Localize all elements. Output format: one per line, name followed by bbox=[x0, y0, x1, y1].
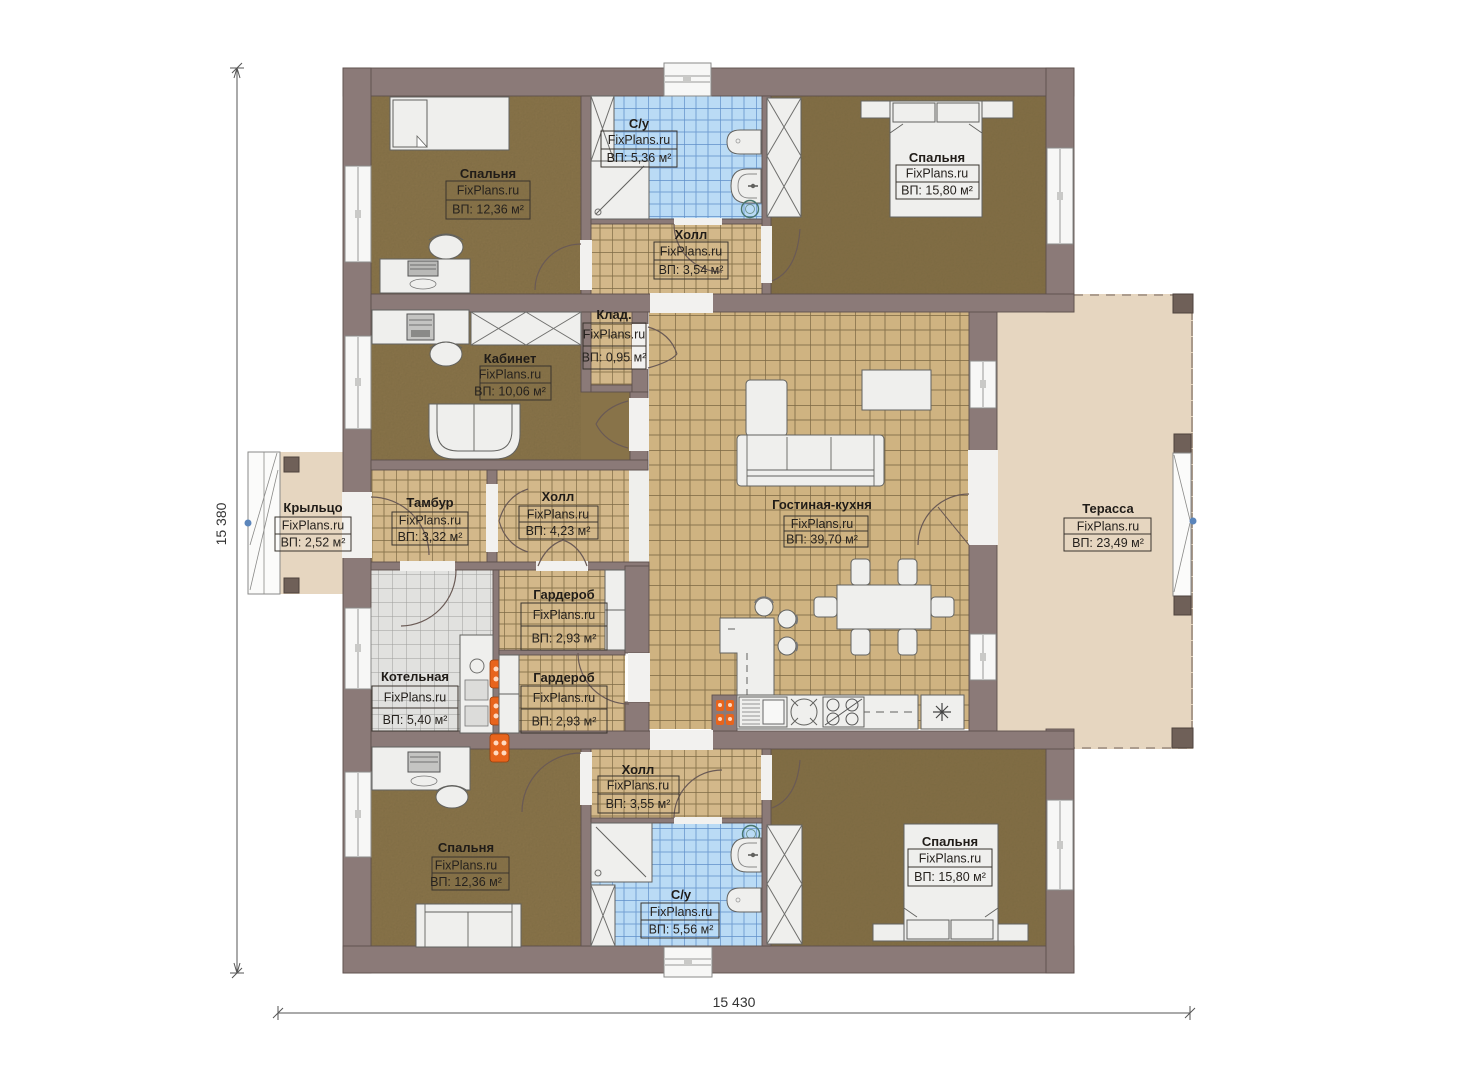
svg-text:ВП: 39,70 м²: ВП: 39,70 м² bbox=[786, 533, 858, 547]
svg-text:FixPlans.ru: FixPlans.ru bbox=[384, 691, 447, 705]
svg-text:С/у: С/у bbox=[671, 887, 692, 902]
svg-text:Холл: Холл bbox=[622, 762, 655, 777]
svg-text:ВП: 2,52 м²: ВП: 2,52 м² bbox=[281, 536, 346, 550]
svg-text:FixPlans.ru: FixPlans.ru bbox=[527, 508, 590, 522]
svg-text:ВП: 5,40 м²: ВП: 5,40 м² bbox=[383, 713, 448, 727]
svg-text:ВП: 2,93 м²: ВП: 2,93 м² bbox=[532, 632, 597, 646]
svg-text:FixPlans.ru: FixPlans.ru bbox=[919, 852, 982, 866]
svg-text:Гостиная-кухня: Гостиная-кухня bbox=[772, 497, 872, 512]
svg-text:Клад.: Клад. bbox=[596, 307, 631, 322]
svg-text:FixPlans.ru: FixPlans.ru bbox=[1077, 520, 1140, 534]
svg-text:ВП: 0,95 м²: ВП: 0,95 м² bbox=[582, 351, 647, 365]
svg-text:Гардероб: Гардероб bbox=[533, 670, 594, 685]
svg-text:FixPlans.ru: FixPlans.ru bbox=[457, 184, 520, 198]
svg-text:ВП: 3,55 м²: ВП: 3,55 м² bbox=[606, 797, 671, 811]
svg-text:15 430: 15 430 bbox=[713, 994, 756, 1010]
svg-text:ВП: 5,36 м²: ВП: 5,36 м² bbox=[607, 151, 672, 165]
svg-text:ВП: 10,06 м²: ВП: 10,06 м² bbox=[474, 385, 546, 399]
svg-text:Холл: Холл bbox=[542, 489, 575, 504]
svg-text:FixPlans.ru: FixPlans.ru bbox=[608, 133, 671, 147]
svg-text:Котельная: Котельная bbox=[381, 669, 449, 684]
svg-text:FixPlans.ru: FixPlans.ru bbox=[399, 514, 462, 528]
svg-text:ВП: 12,36 м²: ВП: 12,36 м² bbox=[452, 203, 524, 217]
svg-text:FixPlans.ru: FixPlans.ru bbox=[650, 905, 713, 919]
svg-text:FixPlans.ru: FixPlans.ru bbox=[660, 244, 723, 258]
svg-text:Тамбур: Тамбур bbox=[406, 495, 453, 510]
svg-text:Спальня: Спальня bbox=[909, 150, 965, 165]
svg-text:FixPlans.ru: FixPlans.ru bbox=[533, 691, 596, 705]
svg-text:Холл: Холл bbox=[675, 227, 708, 242]
svg-text:FixPlans.ru: FixPlans.ru bbox=[479, 368, 542, 382]
svg-text:Терасса: Терасса bbox=[1082, 501, 1134, 516]
svg-text:Гардероб: Гардероб bbox=[533, 587, 594, 602]
svg-text:Спальня: Спальня bbox=[460, 166, 516, 181]
svg-text:С/у: С/у bbox=[629, 116, 650, 131]
svg-text:Спальня: Спальня bbox=[438, 840, 494, 855]
svg-text:ВП: 15,80 м²: ВП: 15,80 м² bbox=[901, 184, 973, 198]
svg-text:ВП: 4,23 м²: ВП: 4,23 м² bbox=[526, 524, 591, 538]
svg-text:FixPlans.ru: FixPlans.ru bbox=[583, 328, 646, 342]
svg-text:FixPlans.ru: FixPlans.ru bbox=[906, 167, 969, 181]
svg-text:ВП: 23,49 м²: ВП: 23,49 м² bbox=[1072, 536, 1144, 550]
svg-text:ВП: 2,93 м²: ВП: 2,93 м² bbox=[532, 715, 597, 729]
svg-text:Спальня: Спальня bbox=[922, 834, 978, 849]
svg-text:ВП: 12,36 м²: ВП: 12,36 м² bbox=[430, 875, 502, 889]
svg-text:FixPlans.ru: FixPlans.ru bbox=[791, 517, 854, 531]
svg-text:FixPlans.ru: FixPlans.ru bbox=[435, 859, 498, 873]
svg-text:FixPlans.ru: FixPlans.ru bbox=[607, 779, 670, 793]
svg-text:ВП: 3,32 м²: ВП: 3,32 м² bbox=[398, 530, 463, 544]
svg-text:Крыльцо: Крыльцо bbox=[283, 500, 342, 515]
svg-text:ВП: 5,56 м²: ВП: 5,56 м² bbox=[649, 923, 714, 937]
svg-text:15 380: 15 380 bbox=[213, 502, 229, 545]
svg-text:ВП: 3,54 м²: ВП: 3,54 м² bbox=[659, 263, 724, 277]
svg-text:Кабинет: Кабинет bbox=[484, 351, 537, 366]
svg-text:ВП: 15,80 м²: ВП: 15,80 м² bbox=[914, 870, 986, 884]
svg-text:FixPlans.ru: FixPlans.ru bbox=[533, 608, 596, 622]
svg-text:FixPlans.ru: FixPlans.ru bbox=[282, 519, 345, 533]
